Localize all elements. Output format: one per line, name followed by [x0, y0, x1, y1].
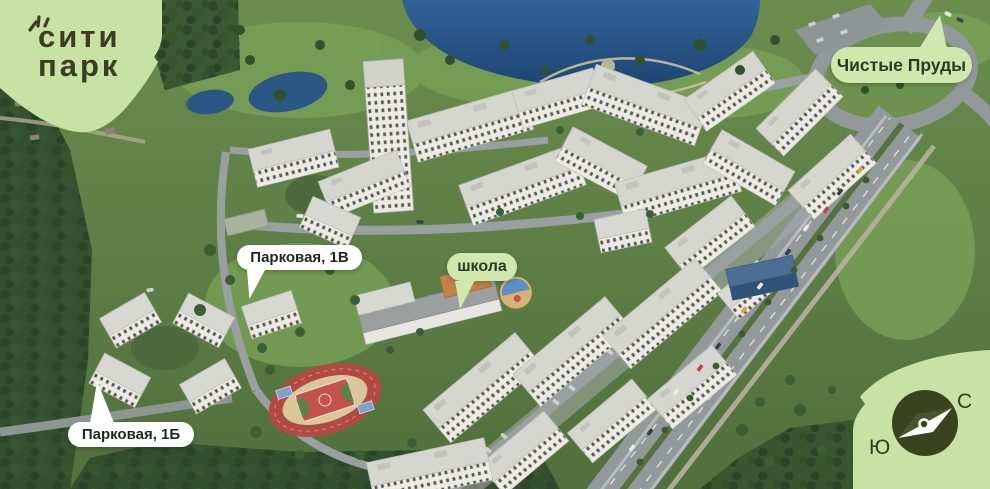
label-parkovaya-1v-text: Парковая, 1В	[250, 249, 348, 266]
brand-logo: сити парк	[38, 22, 121, 80]
label-parkovaya-1b-text: Парковая, 1Б	[82, 426, 180, 443]
brand-logo-line1: сити	[38, 22, 121, 51]
label-chistye-prudy[interactable]: Чистые Пруды	[831, 47, 972, 83]
compass-south-label: Ю	[869, 436, 890, 460]
label-shkola[interactable]: школа	[447, 253, 517, 281]
label-shkola-text: школа	[457, 258, 507, 276]
label-parkovaya-1b[interactable]: Парковая, 1Б	[68, 422, 194, 447]
label-parkovaya-1v[interactable]: Парковая, 1В	[237, 245, 362, 270]
compass-north-label: С	[957, 390, 972, 414]
masterplan-scene: сити парк Чистые Пруды Парковая, 1В школ…	[0, 0, 990, 489]
label-chistye-prudy-text: Чистые Пруды	[837, 55, 966, 76]
brand-logo-line2: парк	[38, 51, 121, 80]
